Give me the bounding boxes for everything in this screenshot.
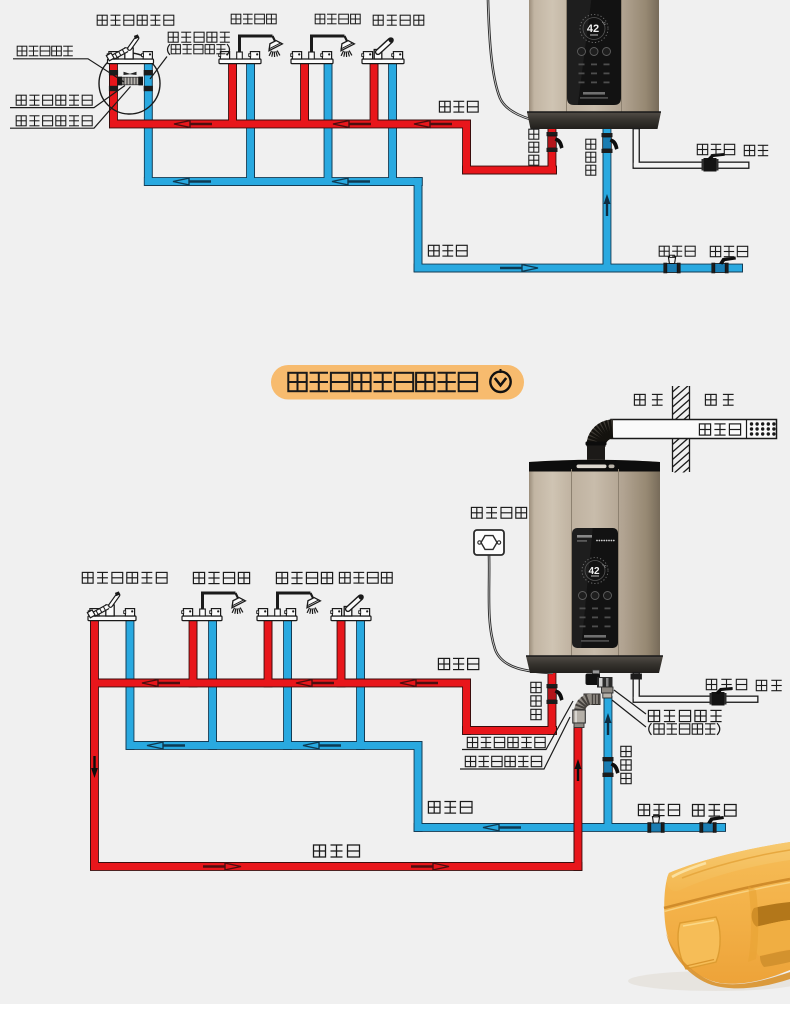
svg-text:42: 42 [587,23,599,35]
